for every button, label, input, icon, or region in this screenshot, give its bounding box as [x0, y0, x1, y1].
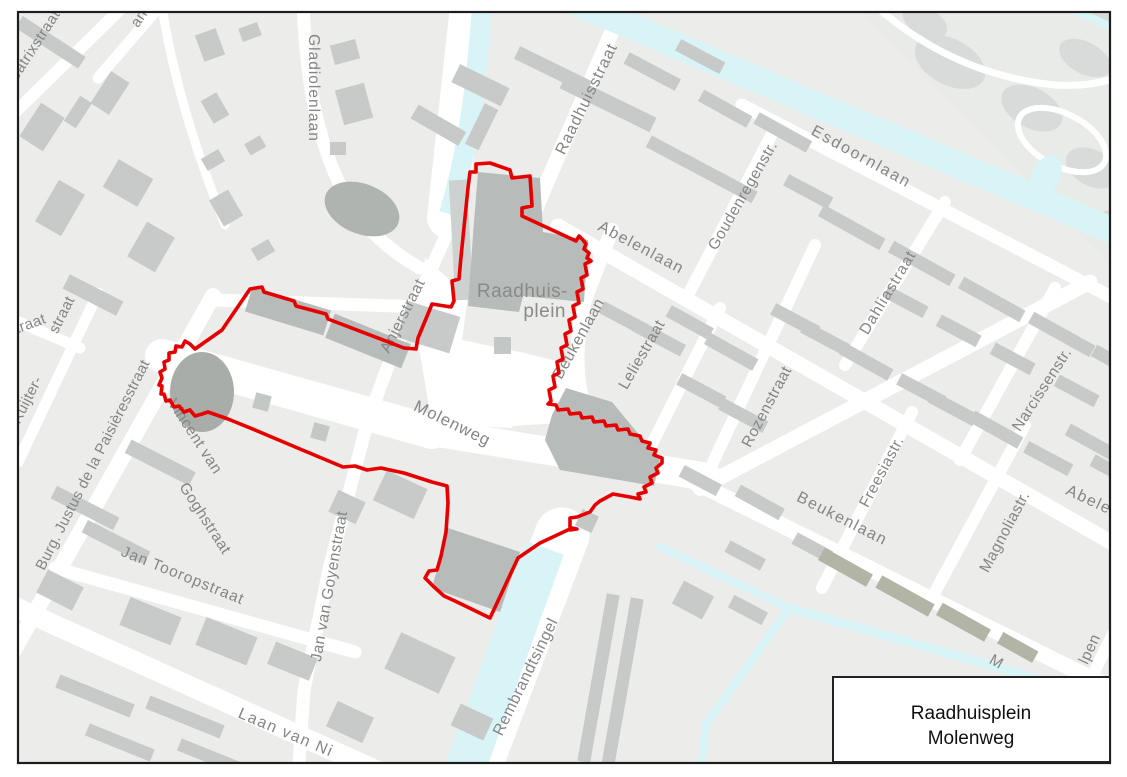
- street-label-raadhuisplein-line1: Raadhuis-: [477, 281, 568, 302]
- title-box-line2: Molenweg: [928, 728, 1015, 749]
- map-page: BeatrixstraatanGladiolenlaanRaadhuisstra…: [0, 0, 1127, 777]
- map-layers: BeatrixstraatanGladiolenlaanRaadhuisstra…: [0, 0, 1127, 777]
- title-box-line1: Raadhuisplein: [911, 703, 1031, 724]
- street-label-raadhuisplein-line2: plein: [523, 301, 566, 322]
- street-label-gladiolenlaan: Gladiolenlaan: [305, 34, 322, 142]
- title-box: Raadhuisplein Molenweg: [833, 677, 1110, 762]
- map-canvas: BeatrixstraatanGladiolenlaanRaadhuisstra…: [0, 0, 1127, 777]
